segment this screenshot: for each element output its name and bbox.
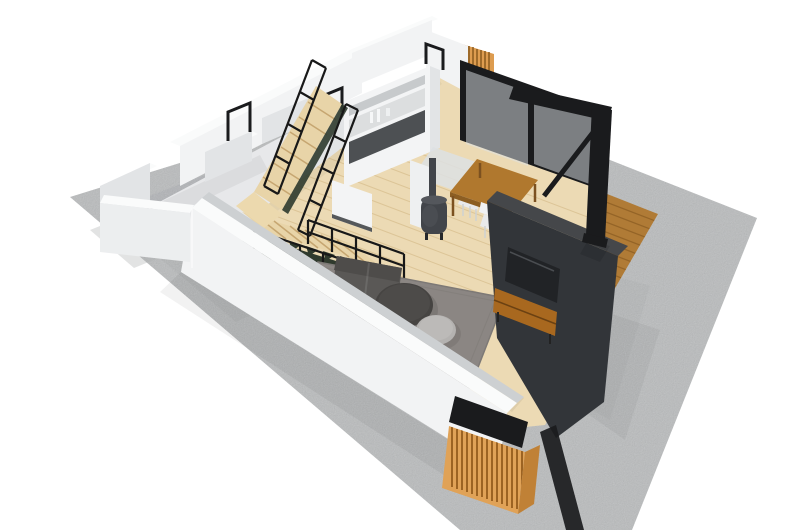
- counter-bottle: [370, 112, 373, 123]
- wing-wall-face: [100, 203, 190, 262]
- counter-glass: [386, 108, 390, 116]
- stove-top-cap: [421, 196, 447, 205]
- floorplan-3d-render: [0, 0, 787, 530]
- render-canvas: [0, 0, 787, 530]
- stove-leg: [425, 233, 428, 240]
- stove-leg: [440, 233, 443, 240]
- stove-belly: [422, 205, 438, 227]
- stove-flue-pipe: [429, 158, 436, 202]
- counter-bottle: [377, 109, 380, 122]
- island-side: [430, 66, 440, 152]
